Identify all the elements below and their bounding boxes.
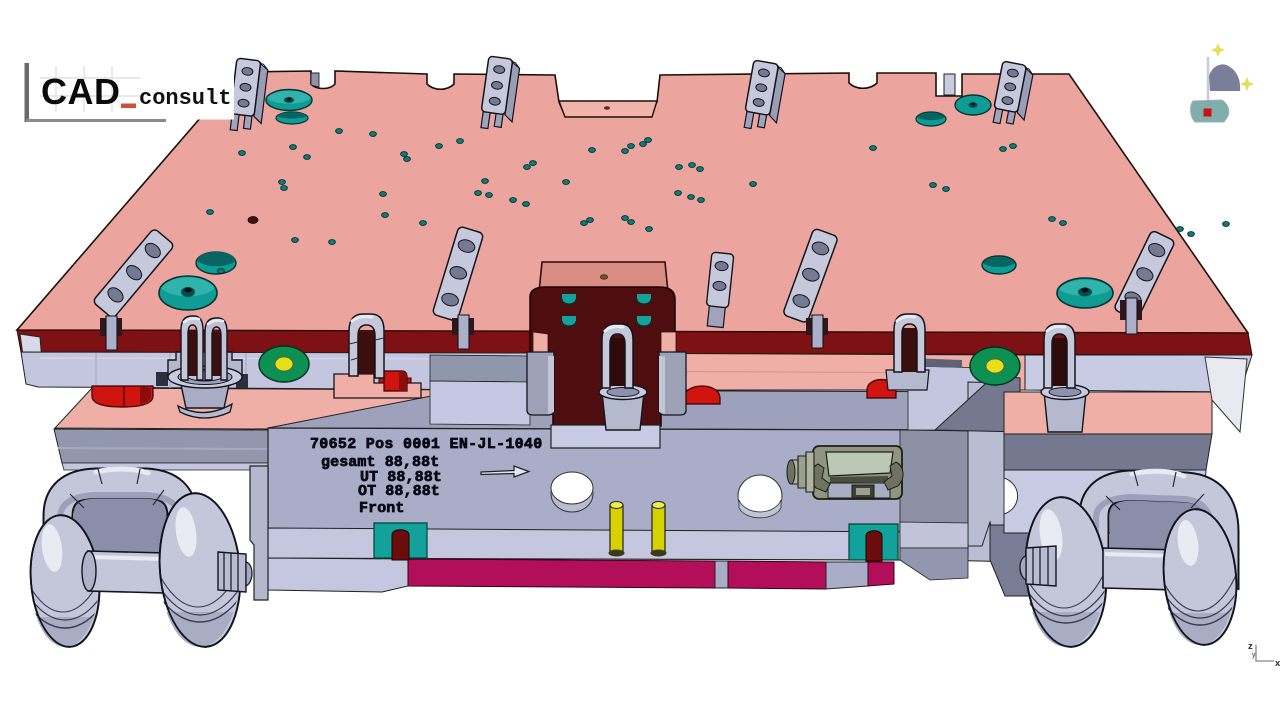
svg-text:consult: consult — [139, 86, 231, 111]
svg-text:z: z — [1248, 641, 1253, 652]
svg-text:Front: Front — [359, 500, 405, 517]
svg-text:70652 Pos 0001 EN-JL-1040: 70652 Pos 0001 EN-JL-1040 — [310, 436, 543, 453]
svg-text:CAD: CAD — [41, 71, 121, 112]
svg-text:OT 88,88t: OT 88,88t — [358, 483, 440, 500]
svg-text:y: y — [1252, 652, 1256, 659]
svg-text:x: x — [1275, 658, 1280, 669]
